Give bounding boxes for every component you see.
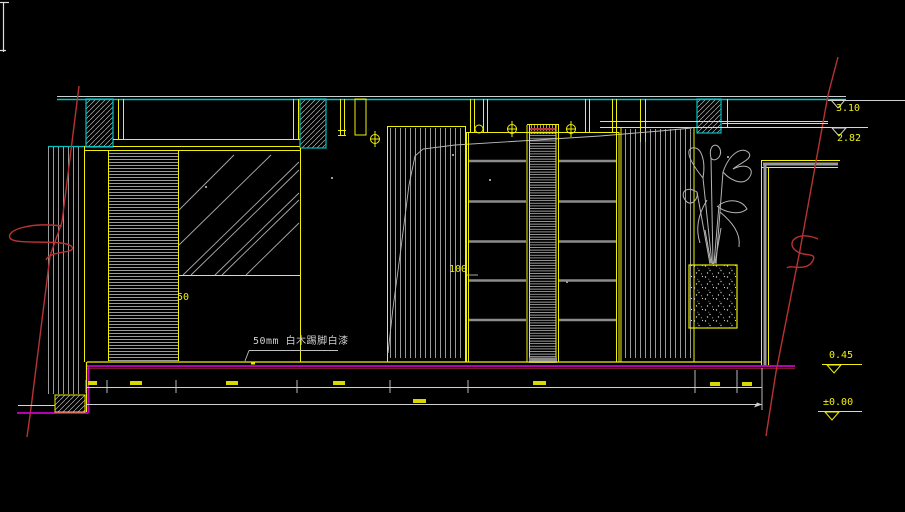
section-break-line-right <box>766 57 838 436</box>
level-label-floor: ±0.00 <box>823 398 853 408</box>
cad-elevation-drawing: 3.10 2.82 0.45 ±0.00 50 100 50mm 白木踢脚白漆 <box>0 0 905 512</box>
louver-column <box>530 133 556 358</box>
slatted-panel-left <box>109 151 178 361</box>
level-label-ceiling: 2.82 <box>837 134 861 144</box>
skirting-section-block <box>55 395 85 412</box>
right-return-wall <box>761 160 840 366</box>
skirting-note-text: 50mm 白木踢脚白漆 <box>253 337 349 347</box>
planter-box <box>689 265 737 328</box>
dimension-text-marks <box>88 381 752 403</box>
elevation-linework <box>0 0 905 512</box>
slat-wall-right <box>621 127 694 362</box>
level-label-top: 3.10 <box>836 104 860 114</box>
dimension-lines <box>86 368 762 410</box>
dim-label-100: 100 <box>449 265 467 275</box>
viewport-edge-artifact <box>0 2 9 52</box>
dim-label-50: 50 <box>177 293 189 303</box>
shelving-unit <box>466 125 619 363</box>
level-label-platform: 0.45 <box>829 351 853 361</box>
ceiling-bay-left <box>113 99 300 147</box>
slat-wall-middle <box>387 126 466 362</box>
left-wall-end <box>49 147 79 394</box>
mirror-panel <box>179 155 299 275</box>
plant-sketch <box>683 145 751 264</box>
